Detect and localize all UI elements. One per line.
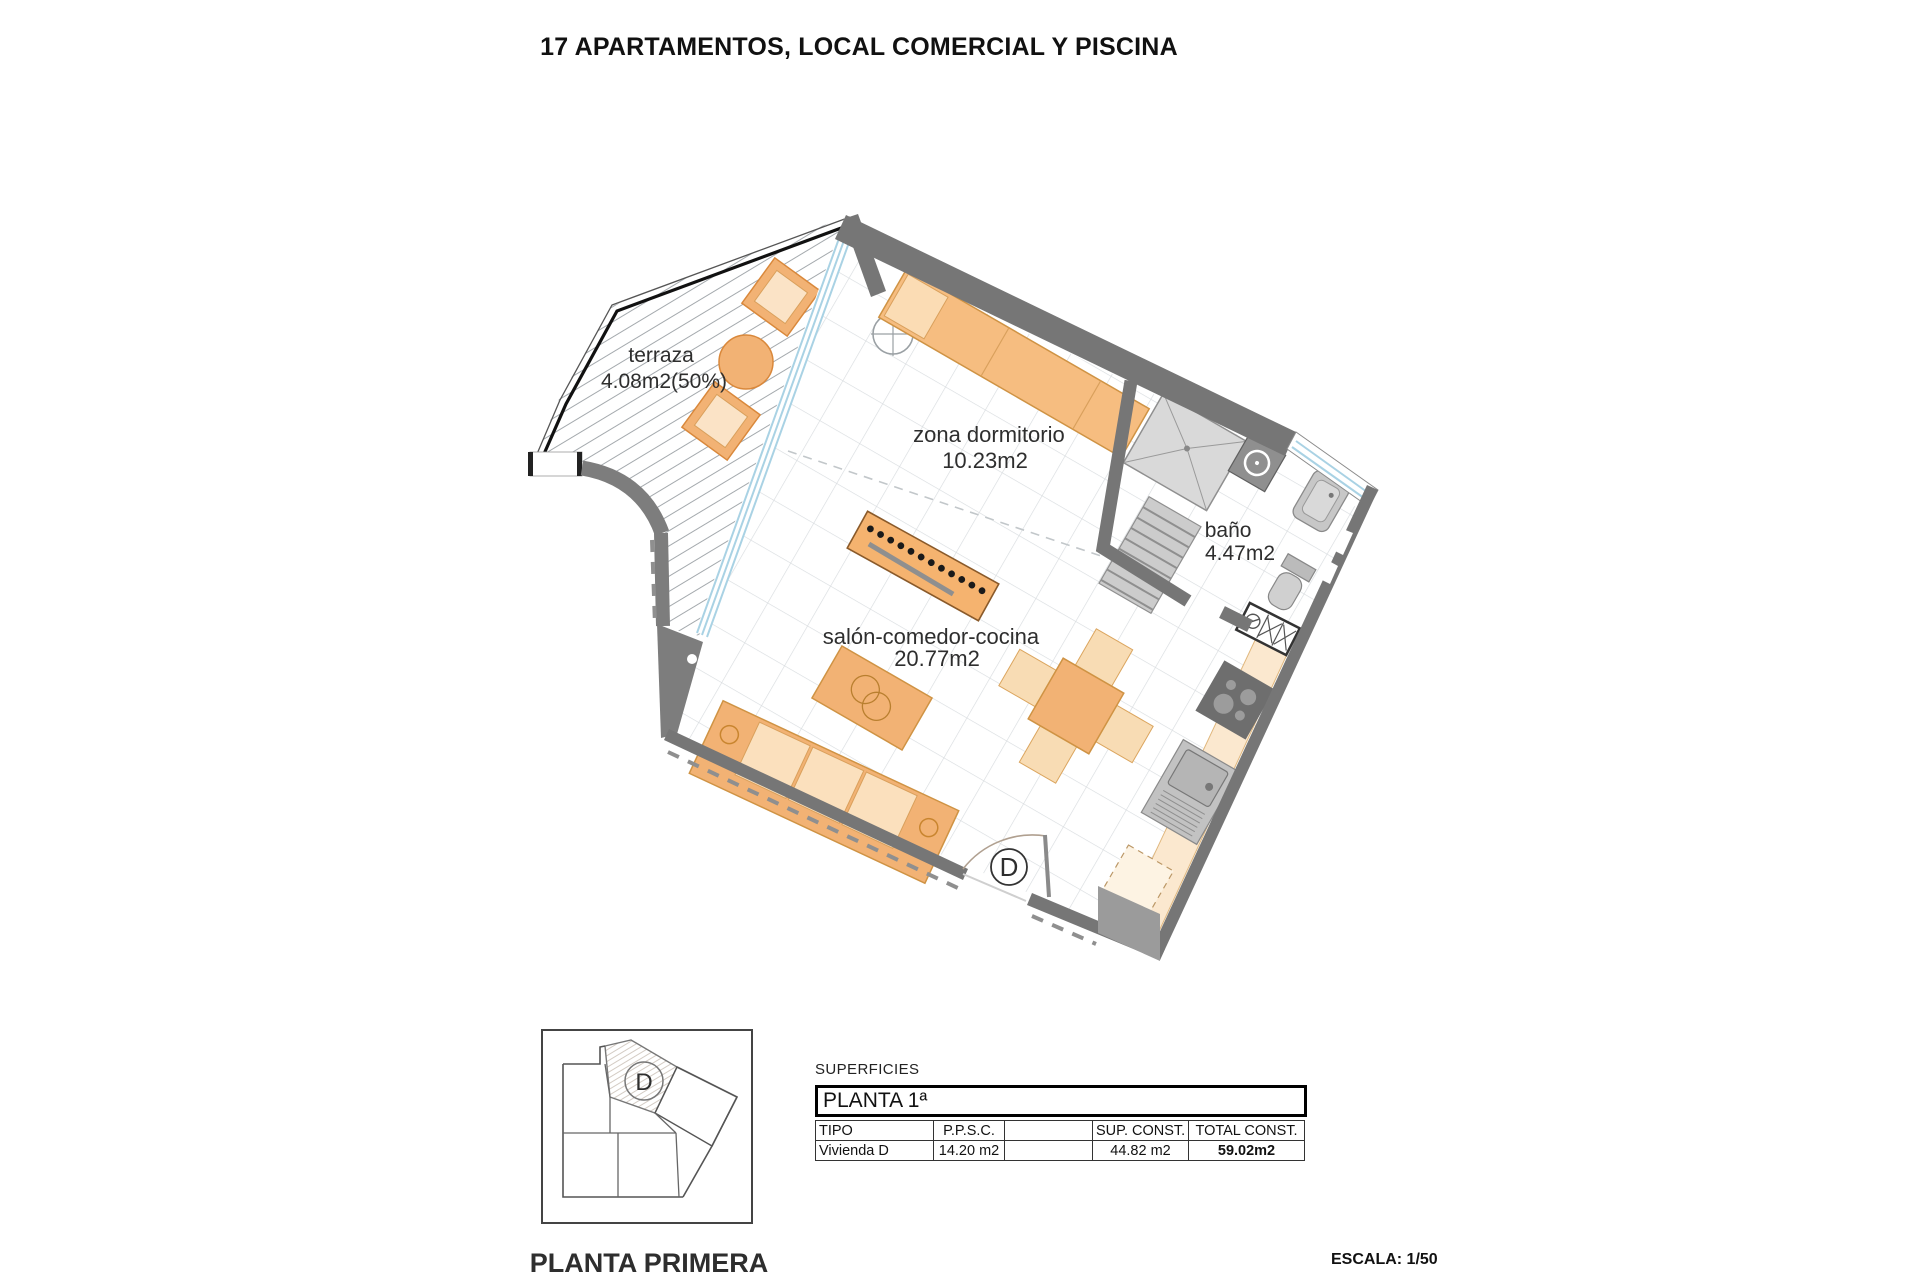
surfaces-label: SUPERFICIES [815, 1061, 1307, 1078]
key-plan-unit-letter: D [635, 1069, 652, 1096]
cell-total-const: 59.02m2 [1189, 1141, 1305, 1161]
col-tipo: TIPO [816, 1121, 934, 1141]
unit-letter: D [1000, 852, 1019, 882]
parapet-opening [528, 452, 582, 476]
cell-sup-const: 44.82 m2 [1093, 1141, 1189, 1161]
cell-ppsc: 14.20 m2 [934, 1141, 1005, 1161]
table-row: Vivienda D 14.20 m2 44.82 m2 59.02m2 [816, 1141, 1305, 1161]
cell-empty [1005, 1141, 1093, 1161]
col-sup-const: SUP. CONST. [1093, 1121, 1189, 1141]
key-plan-caption: PLANTA PRIMERA [530, 1248, 769, 1278]
surfaces-table: SUPERFICIES PLANTA 1ª TIPO P.P.S.C. SUP.… [815, 1061, 1307, 1161]
surfaces-grid: TIPO P.P.S.C. SUP. CONST. TOTAL CONST. V… [815, 1120, 1305, 1161]
floor-header: PLANTA 1ª [815, 1085, 1307, 1117]
header-row: TIPO P.P.S.C. SUP. CONST. TOTAL CONST. [816, 1121, 1305, 1141]
terrace-round-table [719, 335, 773, 389]
wall-detail-dot [687, 654, 697, 664]
col-empty [1005, 1121, 1093, 1141]
cell-tipo: Vivienda D [816, 1141, 934, 1161]
floor-plan-sheet: 17 APARTAMENTOS, LOCAL COMERCIAL Y PISCI… [0, 0, 1920, 1280]
key-plan: D PLANTA PRIMERA [530, 1030, 769, 1278]
col-total-const: TOTAL CONST. [1189, 1121, 1305, 1141]
col-ppsc: P.P.S.C. [934, 1121, 1005, 1141]
left-wall [661, 533, 663, 626]
scale-note: ESCALA: 1/50 [1331, 1251, 1438, 1269]
